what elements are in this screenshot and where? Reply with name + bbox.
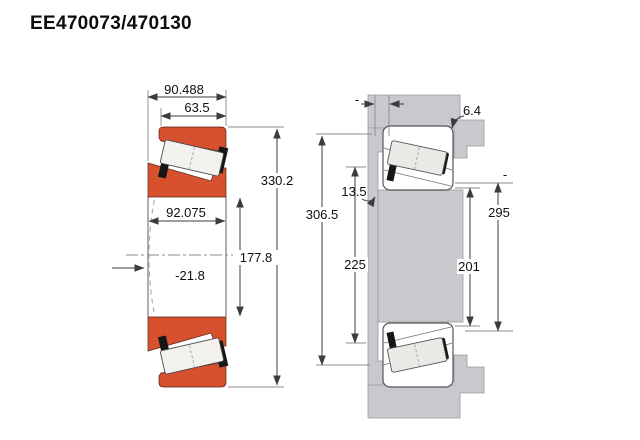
bearing-datasheet-page: EE470073/470130 xyxy=(0,0,640,440)
cup-width-label: 63.5 xyxy=(184,100,209,115)
shoulder-diameter-label: 306.5 xyxy=(306,207,339,222)
bore-diameter-label: 177.8 xyxy=(240,250,273,265)
shaft xyxy=(378,190,463,322)
unlabeled-dim-side: - xyxy=(503,167,507,182)
overall-width-label: 90.488 xyxy=(164,82,204,97)
shaft-shoulder-label: 225 xyxy=(344,257,366,272)
bearing-drawing: 90.488 63.5 92.075 330.2 177.8 -21.8 xyxy=(0,0,640,440)
rib-width-label: 13.5 xyxy=(341,184,366,199)
shaft-backing-label: 201 xyxy=(458,259,480,274)
fillet-radius-label: 6.4 xyxy=(463,103,481,118)
housing-backing-label: 295 xyxy=(488,205,510,220)
cone-width-label: 92.075 xyxy=(166,205,206,220)
mounted-bearing-top xyxy=(383,126,453,190)
outer-diameter-label: 330.2 xyxy=(261,173,294,188)
left-section-view: 90.488 63.5 92.075 330.2 177.8 -21.8 xyxy=(112,82,300,387)
right-mounting-view: - 6.4 13.5 306.5 225 201 295 - xyxy=(300,92,513,418)
unlabeled-dim-top: - xyxy=(355,92,359,107)
effective-center-label: -21.8 xyxy=(175,268,205,283)
mounted-bearing-bottom xyxy=(383,323,453,387)
